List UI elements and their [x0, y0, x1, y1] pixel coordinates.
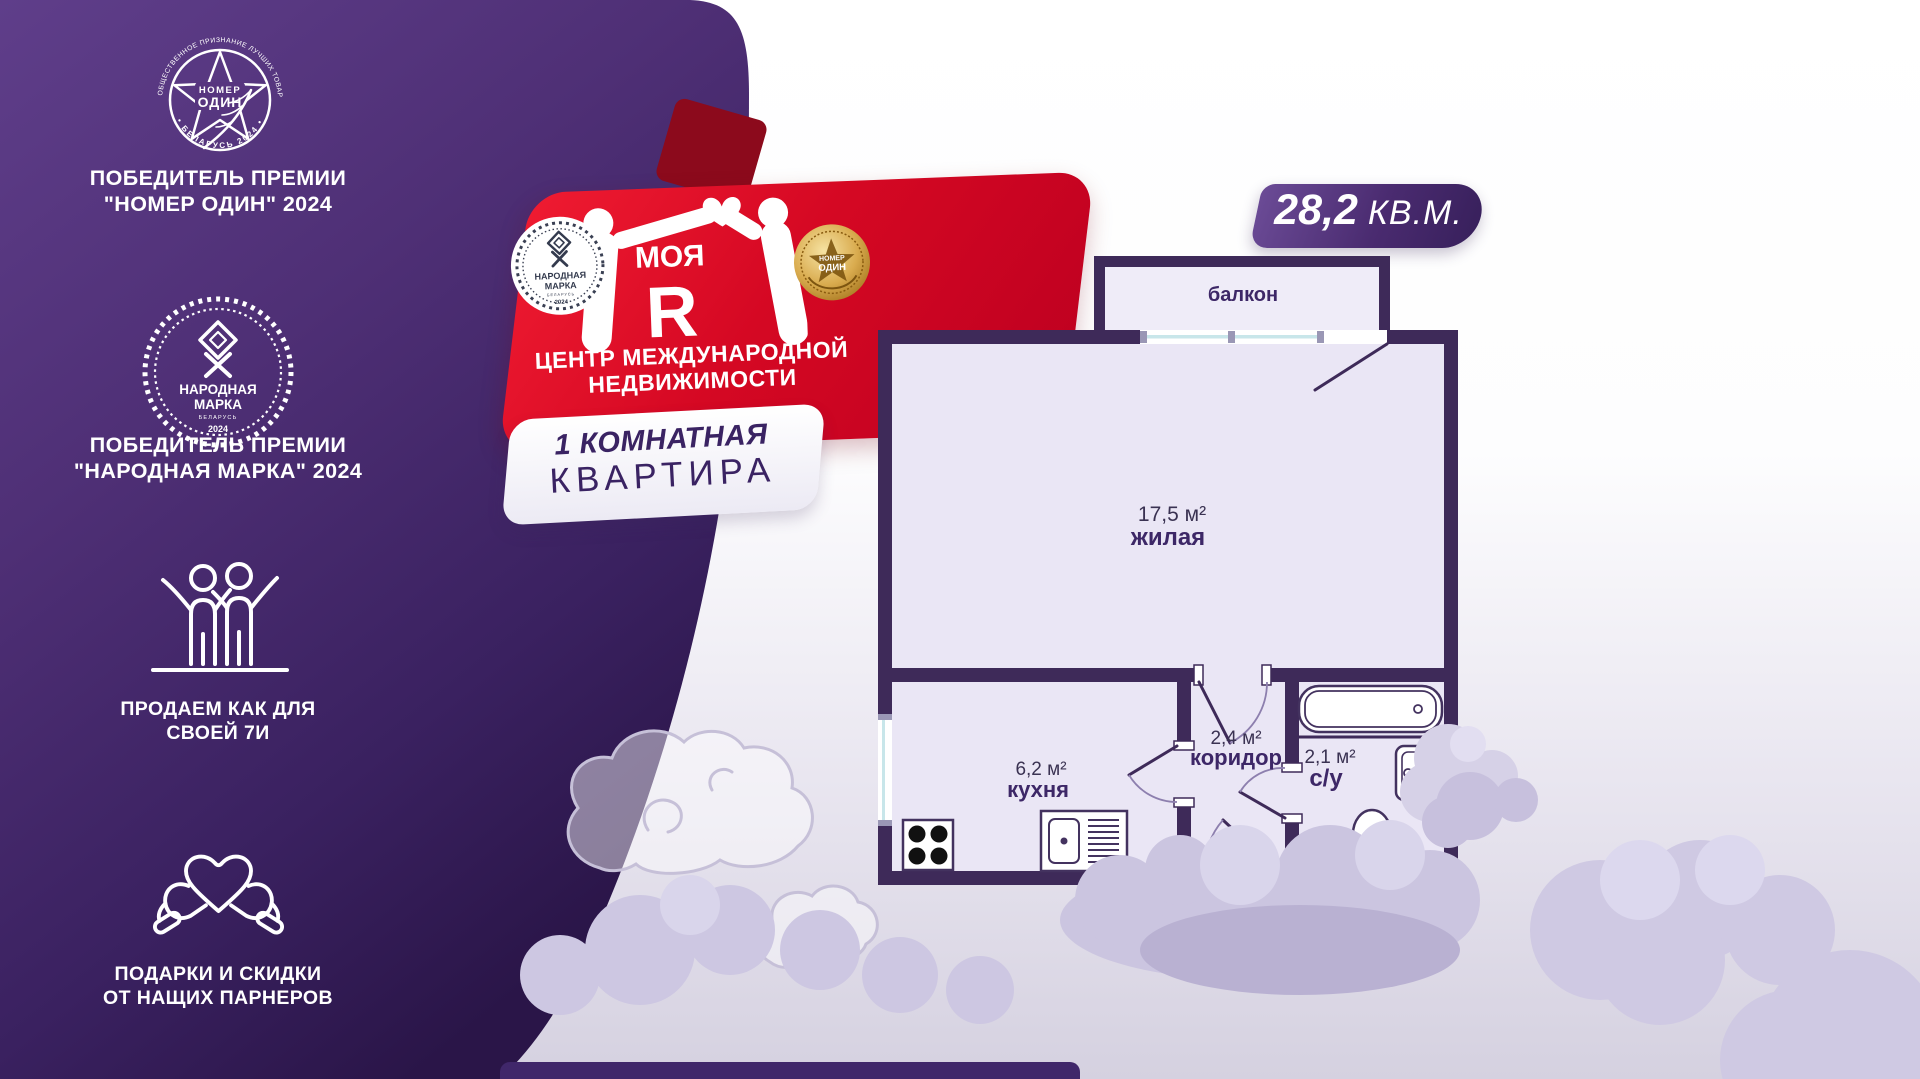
poster-canvas: ПРЕМИЯ ЗА ОБЩЕСТВЕННОЕ ПРИЗНАНИЕ ЛУЧШИХ …: [0, 0, 1920, 1079]
clouds: [0, 0, 1920, 1079]
